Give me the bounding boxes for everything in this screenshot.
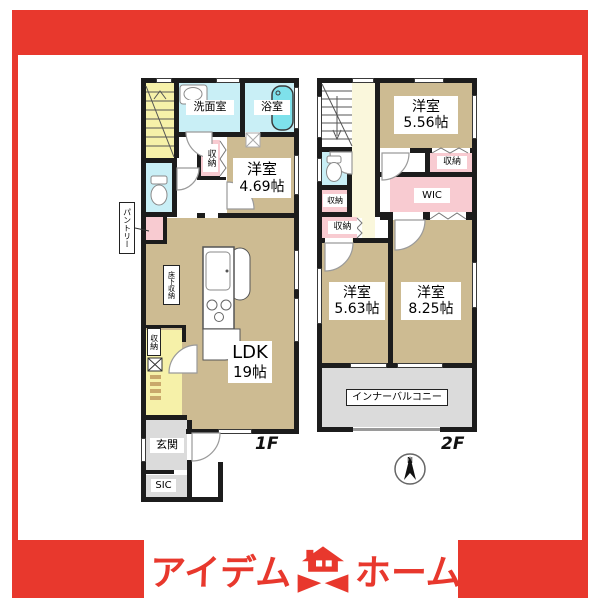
- floor1-label: 1F: [255, 434, 278, 454]
- wic-label: WIC: [414, 188, 450, 203]
- floorplan-flyer: N 洗面室 浴室 洋室 4.69帖 収納 パントリー 床下収納 収納 LDK 1…: [0, 0, 600, 600]
- bath-label: 浴室: [254, 100, 290, 115]
- bedroom-8-25-label: 洋室 8.25帖: [401, 282, 461, 320]
- hall-closet-label: 収納: [147, 328, 161, 356]
- logo-house-icon: [295, 545, 351, 595]
- balcony-railing: [353, 428, 440, 431]
- plan-linework: N: [0, 0, 600, 600]
- bedroom-5-56-label: 洋室 5.56帖: [394, 96, 458, 134]
- frame-right: [582, 10, 588, 598]
- compass-needle: [404, 456, 416, 480]
- ldk-label: LDK 19帖: [228, 341, 272, 383]
- pantry-closet: [146, 217, 163, 240]
- stairs-2f-treads: [322, 84, 352, 146]
- toilet-room-1f: [146, 163, 172, 212]
- footer-band-left: [12, 540, 144, 598]
- closet-b-label: 収納: [323, 194, 347, 207]
- compass-north-label: N: [407, 456, 413, 465]
- bedroom-closet-label: 収納: [203, 144, 218, 172]
- closet-c-label: 収納: [328, 221, 357, 234]
- compass: N: [395, 454, 425, 484]
- washroom-label: 洗面室: [186, 100, 234, 115]
- header-band: [12, 10, 588, 55]
- bedroom-5-63-label: 洋室 5.63帖: [329, 282, 385, 320]
- footer-logo: アイデム ホーム: [148, 541, 464, 598]
- pantry-label: パントリー: [119, 202, 135, 254]
- closet-a-label: 収納: [437, 156, 467, 169]
- bedroom-4-69-label: 洋室 4.69帖: [233, 158, 291, 198]
- entrance-label: 玄関: [150, 438, 184, 453]
- footer-band-right: [458, 540, 588, 598]
- toilet-room-2f: [322, 152, 347, 185]
- frame-left: [12, 10, 18, 598]
- sic-label: SIC: [151, 479, 176, 492]
- underfloor-storage-label: 床下収納: [163, 265, 180, 305]
- floor2-label: 2F: [441, 434, 464, 454]
- inner-balcony-label: インナーバルコニー: [346, 389, 448, 406]
- logo-text-left: アイデム: [149, 544, 292, 596]
- logo-text-right: ホーム: [354, 544, 463, 596]
- stairs-1f: [146, 83, 174, 158]
